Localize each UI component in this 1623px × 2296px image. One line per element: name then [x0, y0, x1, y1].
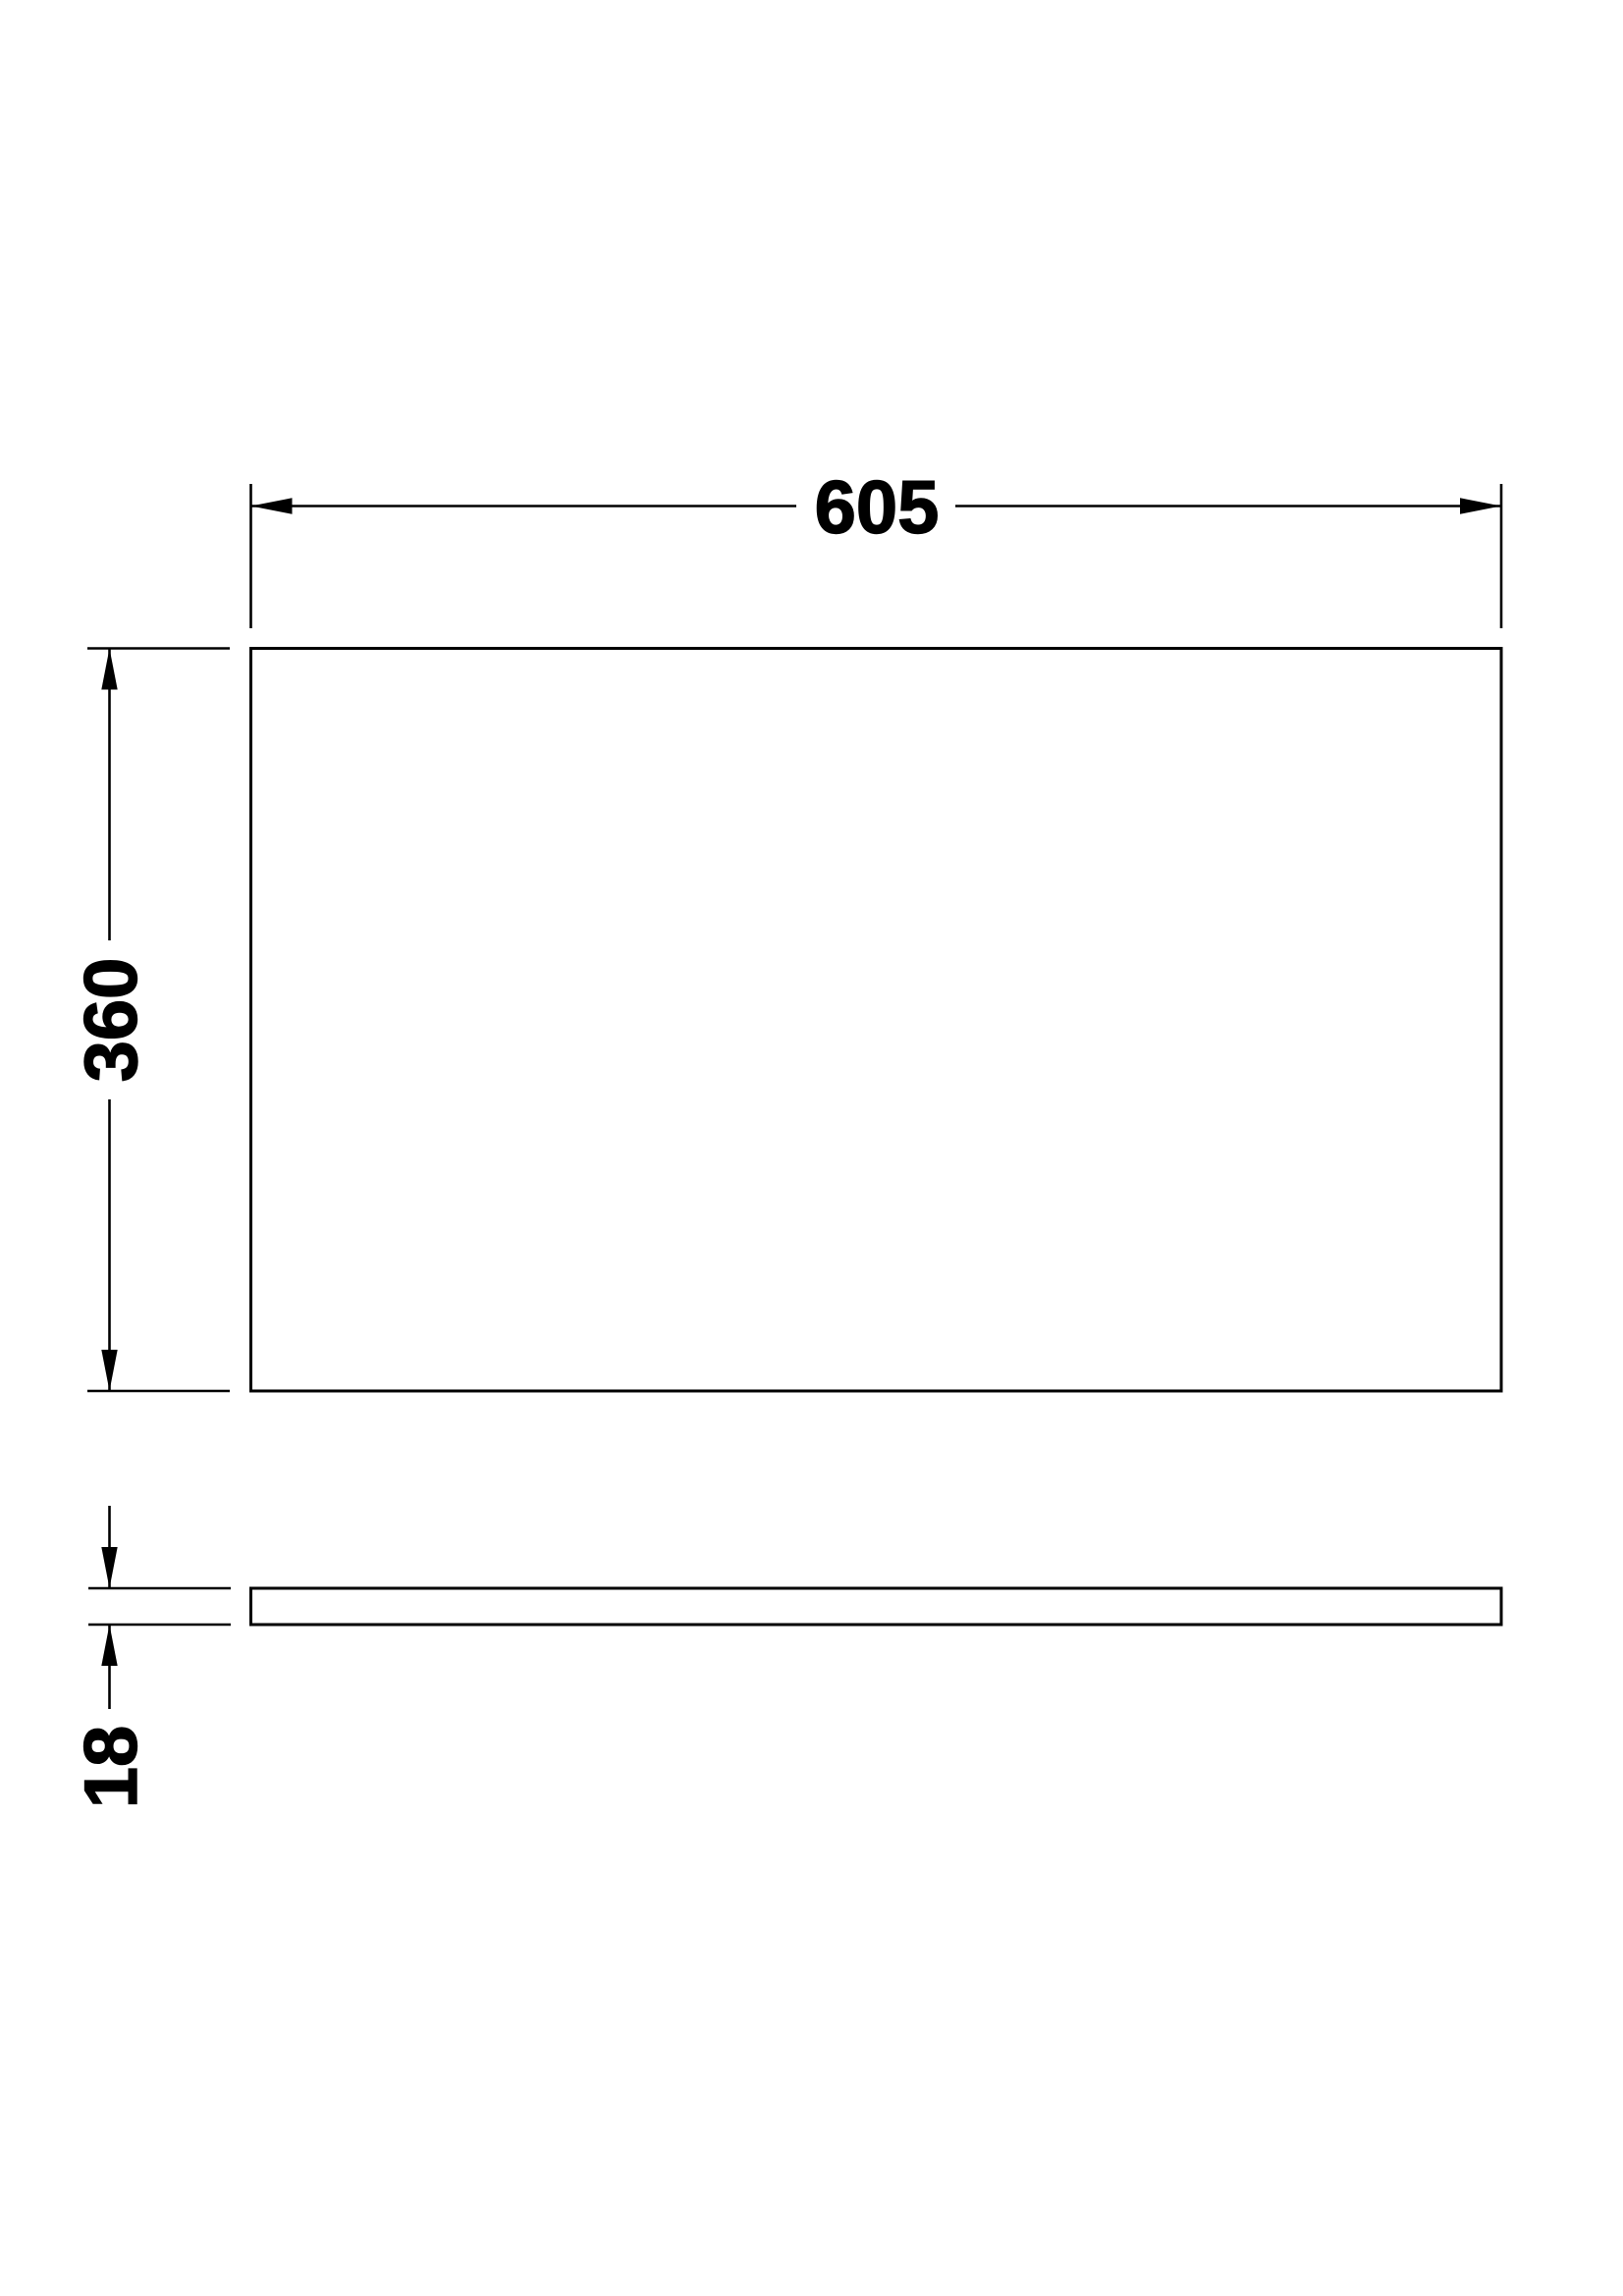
svg-text:360: 360 [70, 958, 153, 1083]
svg-text:18: 18 [70, 1726, 153, 1809]
svg-text:605: 605 [815, 466, 940, 550]
